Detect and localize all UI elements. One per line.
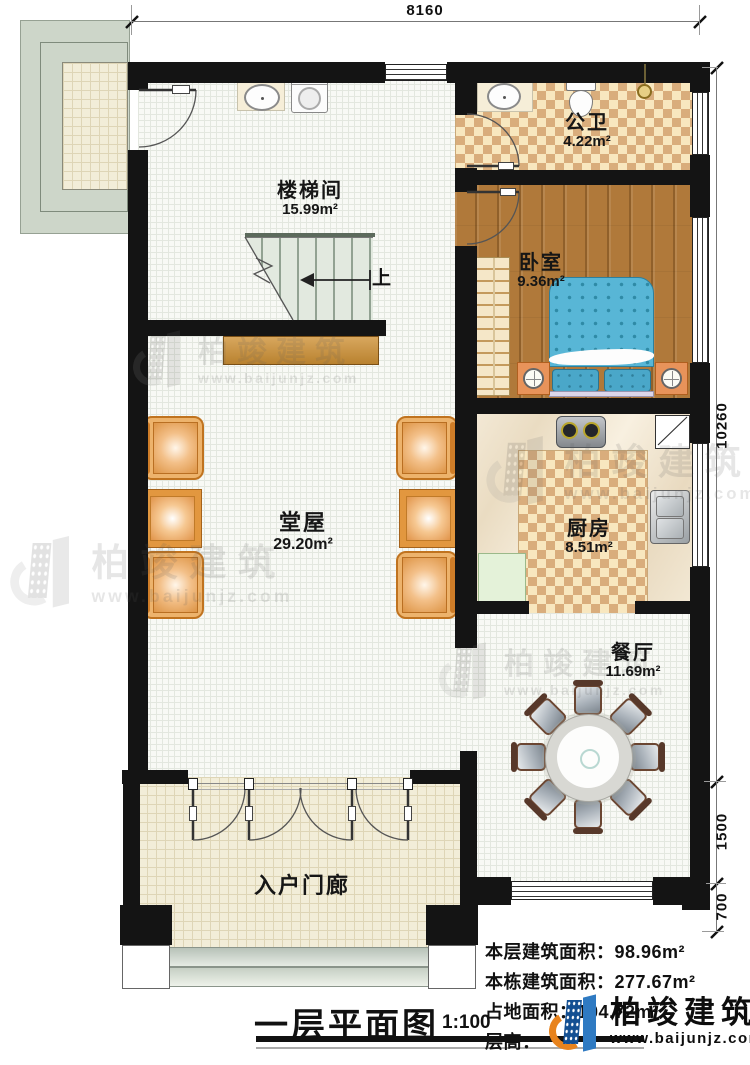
dimension-right-label: 1500 (714, 800, 731, 864)
dimension-line-top (132, 21, 700, 22)
door-swings-overlay (0, 0, 750, 1065)
stairs-up-label: 上 (372, 263, 391, 290)
watermark-logo-icon (14, 538, 79, 611)
floor-plan: 柏竣建筑www.baijunjz.com 柏竣建筑www.baijunjz.co… (0, 0, 750, 1065)
door-handle (348, 806, 356, 821)
room-dining: 餐厅11.69m² (586, 642, 680, 681)
brand-name: 柏竣建筑 (610, 996, 750, 1030)
dimension-right-label: 700 (714, 877, 731, 937)
extension-line (131, 5, 132, 35)
brand-logo: 柏竣建筑 www.baijunjz.com (552, 996, 750, 1054)
door-jamb (244, 778, 254, 790)
watermark: 柏竣建筑www.baijunjz.com (136, 332, 359, 390)
door-handle (500, 188, 516, 196)
info-floor-area: 本层建筑面积：98.96m² (485, 938, 747, 964)
watermark-logo-icon (490, 438, 552, 508)
door-handle (498, 162, 514, 170)
info-building-area: 本栋建筑面积：277.67m² (485, 968, 747, 994)
watermark: 柏竣建筑www.baijunjz.com (490, 438, 750, 508)
room-bedroom: 卧室9.36m² (496, 252, 586, 291)
door-handle (404, 806, 412, 821)
dimension-right-label: 10260 (714, 391, 731, 461)
brand-logo-icon (552, 996, 604, 1054)
room-kitchen: 厨房8.51m² (545, 518, 633, 557)
extension-line (702, 67, 718, 68)
room-bathroom: 公卫4.22m² (545, 112, 629, 151)
watermark-logo-icon (442, 644, 494, 702)
door-jamb (347, 778, 357, 790)
watermark-logo-icon (136, 332, 188, 390)
room-stairwell: 楼梯间15.99m² (245, 180, 375, 219)
door-handle (172, 85, 190, 94)
door-handle (189, 806, 197, 821)
room-hall: 堂屋29.20m² (240, 511, 366, 554)
door-jamb (188, 778, 198, 790)
door-handle (245, 806, 253, 821)
brand-website: www.baijunjz.com (610, 1030, 750, 1047)
scale-label: 1:100 (442, 1012, 491, 1034)
extension-line (699, 5, 700, 35)
door-jamb (403, 778, 413, 790)
extension-line (704, 781, 726, 782)
dimension-top-label: 8160 (390, 2, 460, 19)
room-porch: 入户门廊 (243, 874, 361, 899)
